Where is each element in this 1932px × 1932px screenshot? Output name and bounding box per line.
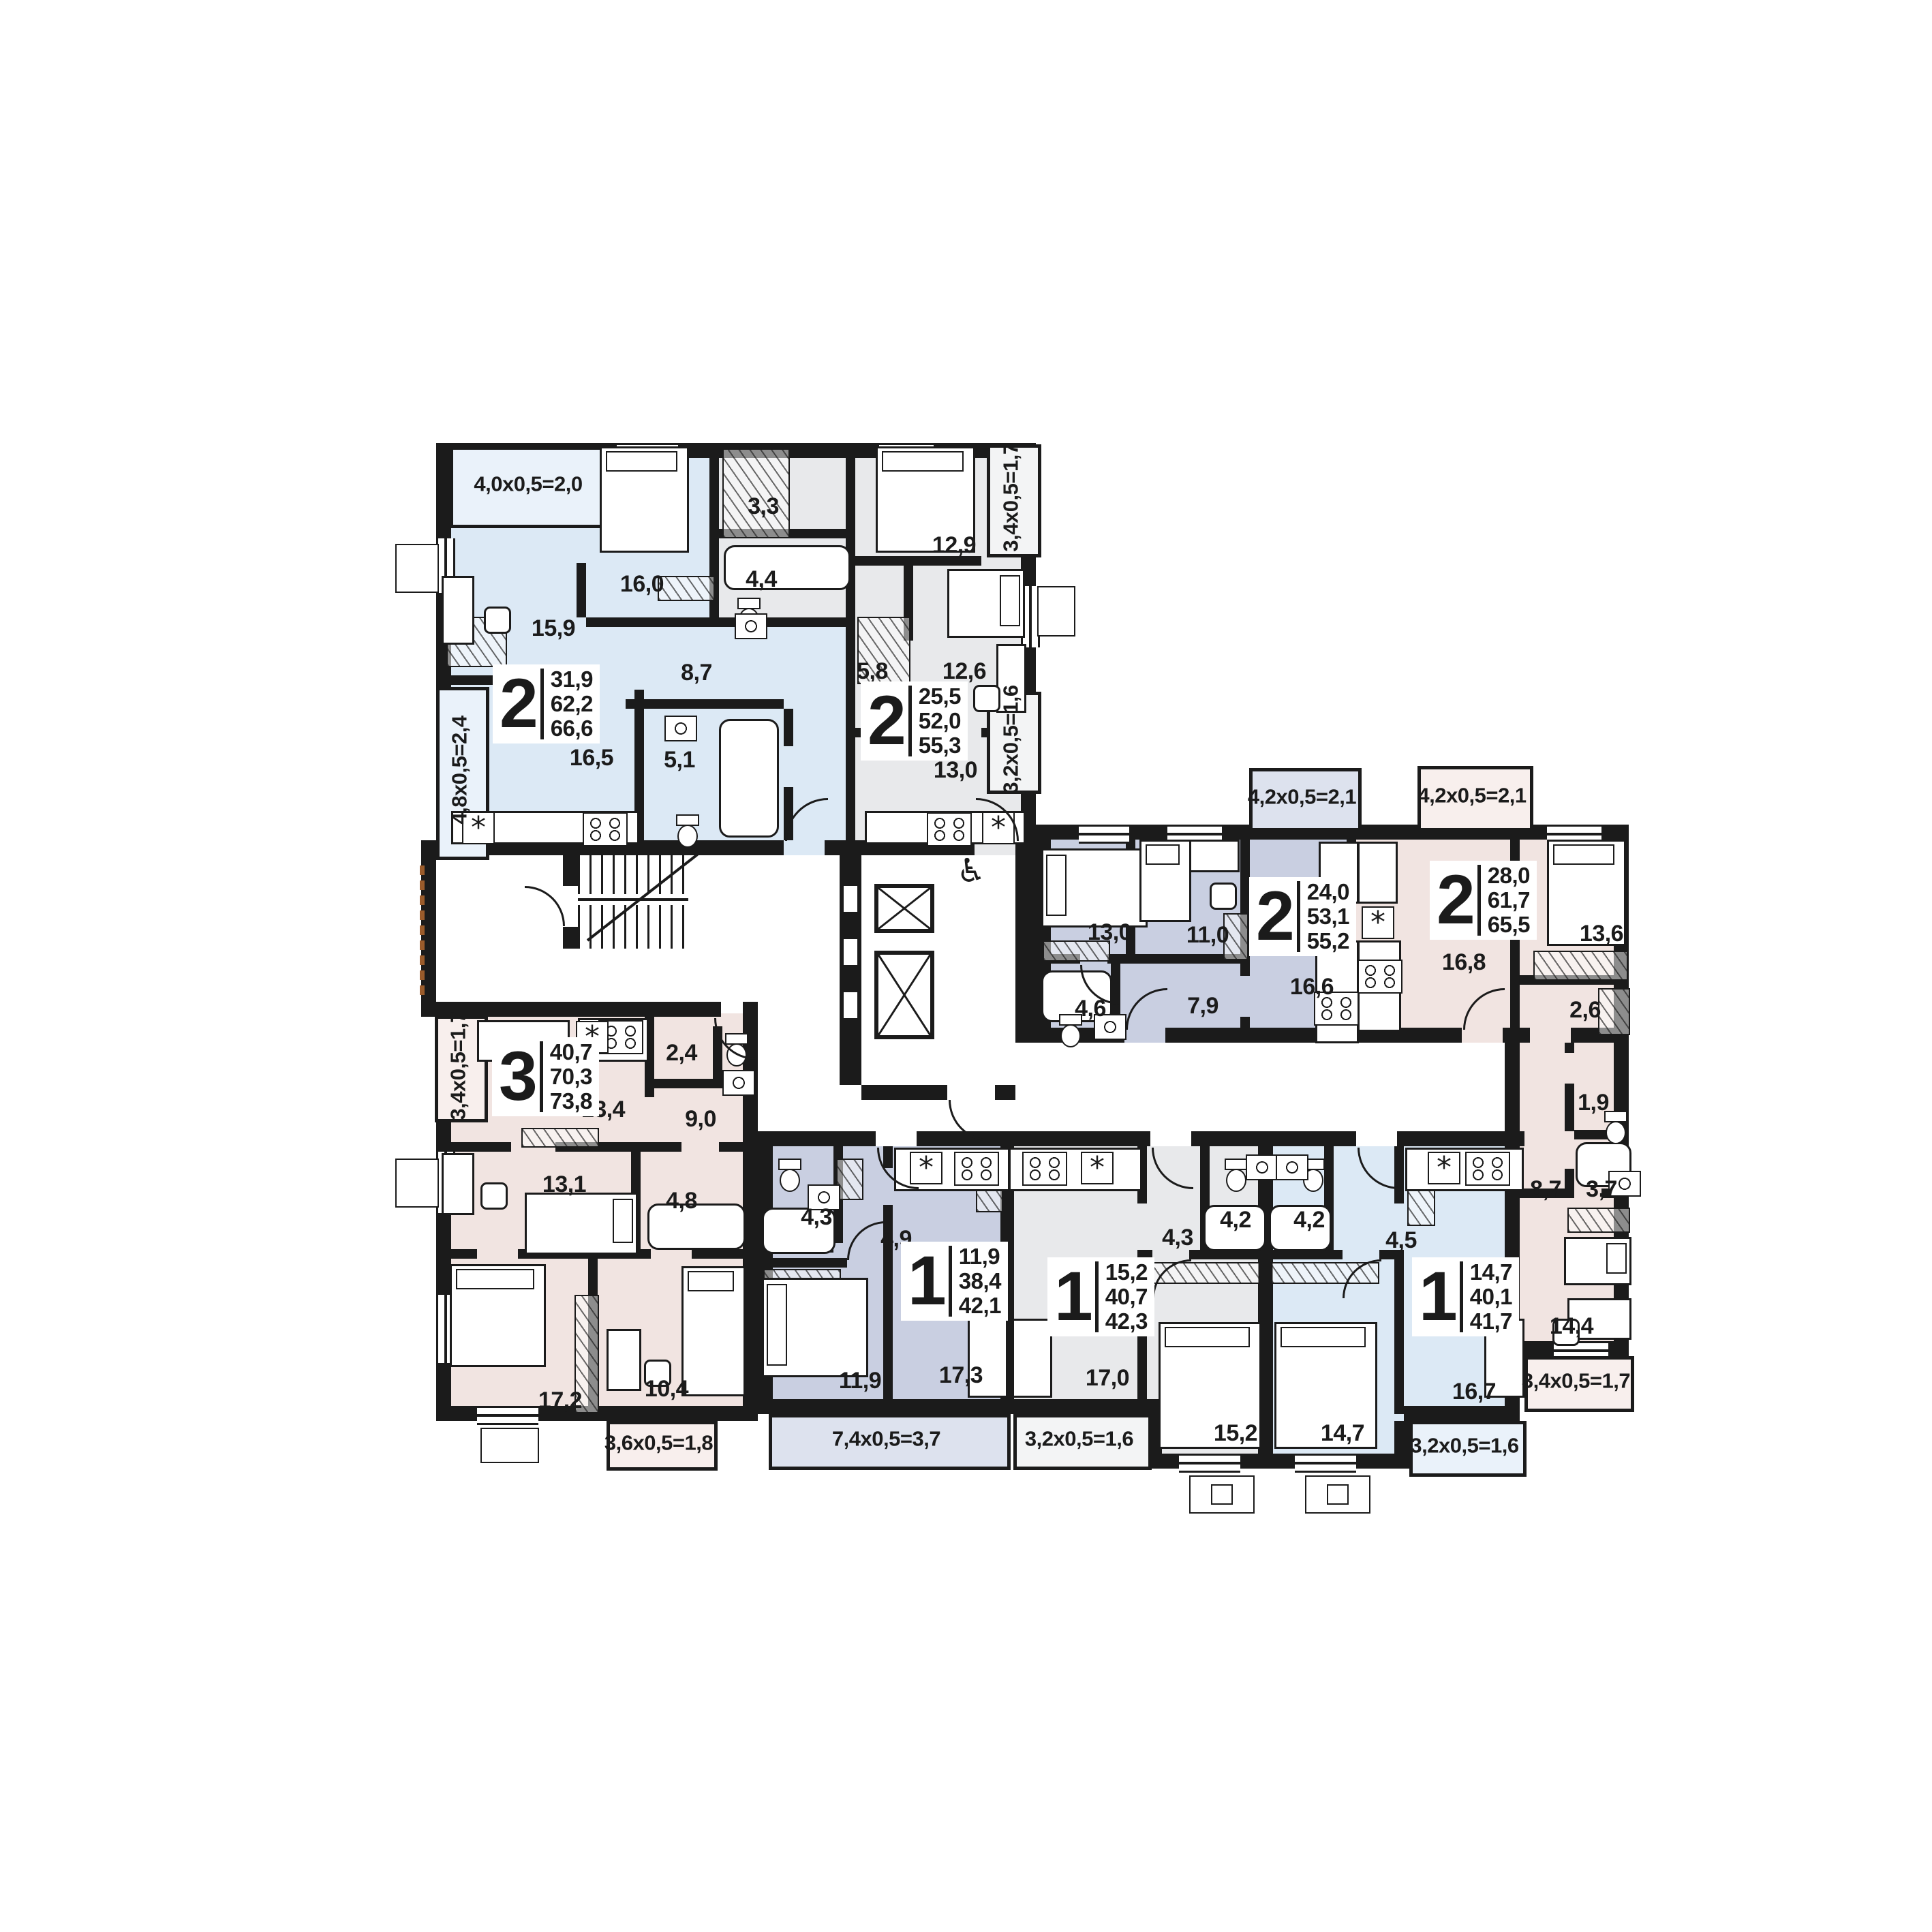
apartment-area-value: 14,7 xyxy=(1470,1260,1512,1285)
chair xyxy=(973,685,1000,712)
room-area-label: 13,0 xyxy=(1088,921,1131,944)
bed-pillow xyxy=(1046,855,1067,916)
apartment-area-value: 55,2 xyxy=(1307,929,1349,953)
room-area-label: 17,0 xyxy=(1086,1366,1129,1390)
wall xyxy=(1266,1250,1343,1259)
bed xyxy=(1041,848,1148,927)
apartment-area-value: 41,7 xyxy=(1470,1309,1512,1334)
bed xyxy=(600,446,689,553)
wall xyxy=(577,563,586,617)
apartment-info-box: 228,061,765,5 xyxy=(1430,861,1537,940)
wardrobe-hatch xyxy=(1567,1208,1630,1233)
fridge-symbol: * xyxy=(1362,906,1394,939)
wall xyxy=(1520,1028,1530,1043)
apartment-areas: 14,740,141,7 xyxy=(1470,1260,1512,1334)
info-box-divider xyxy=(540,669,544,739)
apartment-area-value: 61,7 xyxy=(1488,888,1530,913)
apartment-info-box: 115,240,742,3 xyxy=(1047,1257,1154,1336)
room-area-label: 14,7 xyxy=(1321,1422,1364,1445)
balcony-dimension-label: 3,2х0,5=1,6 xyxy=(1000,685,1022,793)
room-area-label: 2,4 xyxy=(666,1041,697,1064)
wall xyxy=(654,1079,722,1088)
wardrobe-hatch xyxy=(836,1159,863,1200)
wall xyxy=(1165,1028,1462,1043)
wall xyxy=(846,458,855,840)
window xyxy=(1295,1454,1356,1473)
bed-pillow xyxy=(613,1199,633,1243)
apartment-area-value: 73,8 xyxy=(550,1089,592,1114)
room-area-label: 3,3 xyxy=(748,495,779,518)
window xyxy=(1079,825,1129,844)
bed-pillow xyxy=(1165,1327,1250,1347)
room-area-label: 11,0 xyxy=(1186,923,1229,947)
apartment-rooms-count: 2 xyxy=(868,690,903,752)
stove xyxy=(927,812,972,846)
wardrobe-hatch xyxy=(658,576,715,601)
apartment-area-value: 62,2 xyxy=(551,692,593,716)
room-area-label: 1,9 xyxy=(1578,1091,1609,1114)
apartment-area-value: 52,0 xyxy=(919,709,961,733)
apartment-area-value: 55,3 xyxy=(919,733,961,758)
bed xyxy=(762,1278,868,1377)
room-area-label: 12,6 xyxy=(942,660,986,683)
vent-shaft xyxy=(844,939,857,965)
wall xyxy=(1107,954,1240,964)
apartment-areas: 11,938,442,1 xyxy=(959,1244,1001,1319)
wall xyxy=(1015,855,1036,1028)
info-box-divider xyxy=(949,1246,952,1317)
sink xyxy=(1246,1154,1278,1180)
bed xyxy=(450,1264,546,1367)
bed xyxy=(1564,1237,1631,1285)
apartment-areas: 28,061,765,5 xyxy=(1488,863,1530,938)
wall xyxy=(1191,1131,1356,1146)
wall xyxy=(1397,1131,1524,1146)
desk xyxy=(442,1153,474,1215)
room-area-label: 4,4 xyxy=(746,568,777,591)
balcony-dimension-label: 3,2х0,5=1,6 xyxy=(1025,1428,1133,1450)
exterior-unit xyxy=(395,544,439,593)
wheelchair-icon: ♿ xyxy=(956,855,985,887)
room-area-label: 16,6 xyxy=(1290,975,1334,998)
apartment-rooms-count: 2 xyxy=(500,673,535,735)
apartment-areas: 15,240,742,3 xyxy=(1105,1260,1148,1334)
room-area-label: 16,8 xyxy=(1442,951,1486,974)
apartment-info-box: 225,552,055,3 xyxy=(861,681,968,761)
balcony-dimension-label: 3,2х0,5=1,6 xyxy=(1410,1435,1518,1456)
room-area-label: 4,2 xyxy=(1293,1208,1325,1231)
bed xyxy=(947,569,1025,638)
wardrobe-hatch xyxy=(521,1128,599,1148)
room-area-label: 16,5 xyxy=(570,746,613,769)
room-area-label: 15,9 xyxy=(532,617,575,640)
exterior-unit xyxy=(1037,586,1075,637)
exterior-unit xyxy=(1327,1484,1349,1505)
room-area-label: 13,0 xyxy=(934,758,977,782)
bed-pillow xyxy=(606,451,677,472)
balcony-dimension-label: 4,2х0,5=2,1 xyxy=(1248,786,1356,807)
room-area-label: 4,3 xyxy=(1162,1226,1193,1249)
stove xyxy=(583,812,628,846)
elevator-shaft xyxy=(874,884,934,933)
wall xyxy=(1404,1406,1520,1421)
room-area-label: 12,9 xyxy=(932,534,976,557)
sofa xyxy=(1012,1319,1052,1398)
wall xyxy=(861,1085,947,1100)
room-area-label: 16,0 xyxy=(620,572,664,596)
wall xyxy=(436,1142,511,1152)
wall xyxy=(995,1085,1015,1100)
apartment-rooms-count: 3 xyxy=(499,1046,534,1107)
bed-pillow xyxy=(1281,1327,1366,1347)
desk xyxy=(1189,840,1240,872)
room-area-label: 5,1 xyxy=(664,748,695,771)
room-area-label: 11,9 xyxy=(839,1369,881,1392)
floor-plan: ********15,916,08,716,55,14,0х0,5=2,04,8… xyxy=(0,0,1932,1932)
wall xyxy=(719,1142,743,1152)
wall xyxy=(586,617,719,627)
toilet-bowl xyxy=(780,1169,800,1192)
balcony-dimension-label: 4,0х0,5=2,0 xyxy=(474,474,582,495)
wall xyxy=(692,1249,743,1259)
apartment-rooms-count: 1 xyxy=(908,1251,943,1312)
wall xyxy=(709,458,719,627)
apartment-area-value: 25,5 xyxy=(919,684,961,709)
toilet-bowl xyxy=(677,825,698,848)
apartment-area-value: 40,7 xyxy=(1105,1285,1148,1309)
bed-pillow xyxy=(1553,844,1614,865)
apartment-info-box: 231,962,266,6 xyxy=(493,664,600,743)
apartment-rooms-count: 2 xyxy=(1437,870,1472,931)
room-area-label: 13,6 xyxy=(1580,922,1623,945)
stove xyxy=(1022,1152,1067,1186)
info-box-divider xyxy=(1477,865,1481,936)
room-area-label: 9,0 xyxy=(685,1107,716,1131)
bed-pillow xyxy=(882,451,964,472)
room-area-label: 8,7 xyxy=(681,661,712,684)
balcony-dimension-label: 4,2х0,5=2,1 xyxy=(1417,785,1526,806)
bed-pillow xyxy=(1146,844,1180,865)
wall xyxy=(1240,1017,1250,1028)
bed-pillow xyxy=(1000,575,1020,626)
wall xyxy=(784,709,793,746)
wall xyxy=(436,1249,477,1259)
apartment-info-box: 114,740,141,7 xyxy=(1412,1257,1519,1336)
wall xyxy=(1394,1259,1404,1414)
room-area-label: 2,6 xyxy=(1569,998,1601,1022)
apartment-area-value: 11,9 xyxy=(959,1244,1001,1269)
wall xyxy=(644,699,784,709)
balcony-dimension-label: 3,4х0,5=1,7 xyxy=(1000,443,1022,551)
apartment-area-value: 38,4 xyxy=(959,1269,1001,1293)
fridge-symbol: * xyxy=(1081,1152,1114,1184)
wall xyxy=(436,1002,721,1017)
stair-stringer xyxy=(578,898,688,901)
apartment-area-value: 24,0 xyxy=(1307,880,1349,904)
room-area-label: 4,5 xyxy=(1385,1229,1417,1252)
info-box-divider xyxy=(1095,1261,1099,1332)
room-area-label: 3,7 xyxy=(1586,1178,1617,1201)
apartment-area-value: 28,0 xyxy=(1488,863,1530,888)
stove xyxy=(1358,960,1402,994)
apartment-areas: 25,552,055,3 xyxy=(919,684,961,758)
toilet xyxy=(777,1159,800,1191)
wall xyxy=(1007,1399,1147,1414)
info-box-divider xyxy=(908,686,912,756)
bed-pillow xyxy=(688,1271,734,1291)
apartment-rooms-count: 2 xyxy=(1256,886,1291,947)
apartment-area-value: 15,2 xyxy=(1105,1260,1148,1285)
apartment-info-box: 224,053,155,2 xyxy=(1249,877,1356,956)
room-area-label: 7,9 xyxy=(1187,994,1218,1017)
balcony-dimension-label: 3,6х0,5=1,8 xyxy=(604,1432,713,1453)
room-area-label: 16,7 xyxy=(1452,1380,1496,1403)
room-area-label: 4,8 xyxy=(666,1189,697,1212)
chair xyxy=(480,1182,508,1210)
balcony-dimension-label: 3,4х0,5=1,7 xyxy=(1522,1370,1630,1392)
elevator-shaft xyxy=(874,951,934,1039)
room-area-label: 17,3 xyxy=(939,1364,983,1387)
room-area-label: 8,7 xyxy=(1530,1178,1561,1201)
toilet-bowl xyxy=(1606,1121,1626,1144)
sink xyxy=(1276,1154,1308,1180)
info-box-divider xyxy=(1460,1261,1463,1332)
apartment-area-value: 70,3 xyxy=(550,1064,592,1089)
chair xyxy=(1210,883,1237,910)
room-area-label: 14,4 xyxy=(1550,1315,1593,1338)
sofa xyxy=(1358,842,1398,904)
wall xyxy=(917,1131,1150,1146)
apartment-area-value: 42,1 xyxy=(959,1293,1001,1318)
apartment-area-value: 31,9 xyxy=(551,667,593,692)
info-box-divider xyxy=(540,1041,543,1112)
wall xyxy=(563,855,578,886)
apartment-area-value: 40,7 xyxy=(550,1040,592,1064)
wall xyxy=(1394,1421,1409,1469)
wardrobe-hatch xyxy=(1598,988,1630,1035)
sink xyxy=(722,1070,755,1096)
room-area-label: 10,4 xyxy=(645,1377,688,1400)
wall xyxy=(758,1399,1007,1414)
exterior-unit xyxy=(480,1428,539,1463)
room-area-label: 4,3 xyxy=(801,1206,832,1229)
toilet xyxy=(1603,1111,1626,1144)
toilet-bowl xyxy=(1060,1024,1081,1047)
wall xyxy=(1565,1084,1574,1131)
balcony-dimension-label: 4,8х0,5=2,4 xyxy=(449,716,470,824)
apartment-info-box: 111,938,442,1 xyxy=(901,1242,1008,1321)
wall xyxy=(1189,1250,1266,1259)
bed-pillow xyxy=(456,1269,534,1289)
chair xyxy=(484,607,511,634)
room-area-label: 5,8 xyxy=(857,660,888,683)
apartment-areas: 40,770,373,8 xyxy=(550,1040,592,1114)
apartment-area-value: 53,1 xyxy=(1307,904,1349,929)
window xyxy=(477,1406,538,1425)
apartment-area-value: 65,5 xyxy=(1488,913,1530,937)
bed xyxy=(525,1193,638,1255)
bed xyxy=(1139,840,1191,922)
apartment-area-value: 66,6 xyxy=(551,716,593,741)
bed xyxy=(681,1266,746,1396)
apartment-area-value: 42,3 xyxy=(1105,1309,1148,1334)
bed-pillow xyxy=(767,1284,787,1366)
toilet xyxy=(1223,1159,1246,1191)
apartment-rooms-count: 1 xyxy=(1419,1266,1454,1328)
desk xyxy=(442,576,474,645)
vent-shaft xyxy=(844,992,857,1018)
bathtub xyxy=(719,719,779,838)
apartment-areas: 24,053,155,2 xyxy=(1307,880,1349,954)
apartment-info-box: 340,770,373,8 xyxy=(492,1037,599,1116)
room-area-label: 15,2 xyxy=(1214,1422,1257,1445)
wall xyxy=(758,1258,847,1268)
wall xyxy=(1565,1043,1574,1053)
bathtub xyxy=(724,545,850,590)
info-box-divider xyxy=(1297,881,1300,952)
apartment-areas: 31,962,266,6 xyxy=(551,667,593,741)
vent-shaft xyxy=(844,886,857,912)
sink xyxy=(735,613,767,639)
balcony-dimension-label: 3,4х0,5=1,7 xyxy=(448,1011,469,1120)
room-area-label: 4,2 xyxy=(1220,1208,1251,1231)
exterior-unit xyxy=(395,1159,439,1208)
room-area-label: 17,2 xyxy=(538,1389,582,1412)
wall xyxy=(563,927,578,949)
room-area-label: 4,6 xyxy=(1075,997,1106,1020)
apartment-rooms-count: 1 xyxy=(1054,1266,1090,1328)
wall xyxy=(758,1131,876,1146)
wall xyxy=(641,1142,681,1152)
apartment-area-value: 40,1 xyxy=(1470,1285,1512,1309)
desk xyxy=(607,1329,641,1391)
window xyxy=(1179,1454,1240,1473)
toilet xyxy=(675,814,698,847)
toilet-bowl xyxy=(1226,1169,1246,1192)
balcony-dimension-label: 7,4х0,5=3,7 xyxy=(832,1428,940,1450)
wall xyxy=(626,699,644,709)
exterior-unit xyxy=(1211,1484,1233,1505)
stove xyxy=(1465,1152,1510,1186)
room-area-label: 13,1 xyxy=(542,1173,586,1196)
wall xyxy=(1503,1028,1520,1043)
entrance-mark xyxy=(420,865,425,995)
stove xyxy=(954,1152,999,1186)
fridge-symbol: * xyxy=(1428,1152,1460,1184)
sink xyxy=(664,716,697,741)
wardrobe-hatch xyxy=(1533,951,1628,981)
bed-pillow xyxy=(1606,1243,1627,1274)
